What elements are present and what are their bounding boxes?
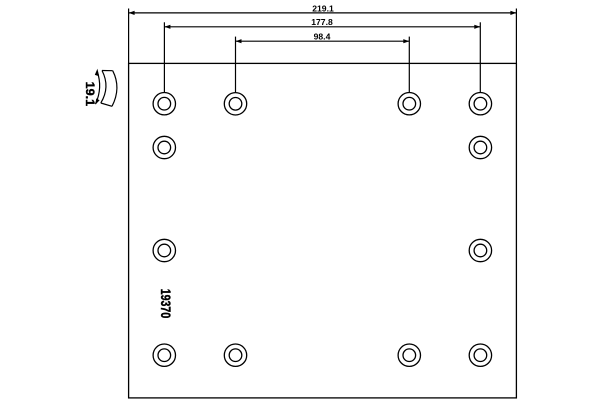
- svg-text:98.4: 98.4: [314, 32, 331, 42]
- svg-text:177.8: 177.8: [311, 17, 333, 27]
- svg-text:219.1: 219.1: [312, 3, 334, 13]
- svg-text:19.1: 19.1: [83, 82, 97, 107]
- svg-text:19370: 19370: [158, 289, 173, 318]
